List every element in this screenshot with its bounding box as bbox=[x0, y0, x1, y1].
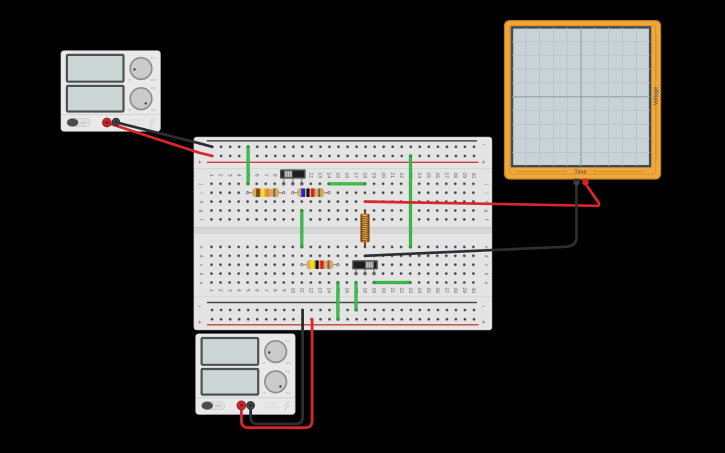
svg-text:1: 1 bbox=[208, 289, 214, 292]
svg-text:OFF: OFF bbox=[215, 404, 221, 408]
svg-text:+: + bbox=[198, 159, 202, 166]
svg-text:0: 0 bbox=[129, 108, 131, 112]
svg-text:27: 27 bbox=[443, 172, 449, 178]
svg-text:8: 8 bbox=[271, 289, 277, 292]
svg-text:17: 17 bbox=[353, 172, 359, 178]
svg-text:20: 20 bbox=[380, 172, 386, 178]
svg-text:29: 29 bbox=[461, 287, 467, 293]
svg-text:i: i bbox=[198, 192, 204, 193]
svg-text:15: 15 bbox=[335, 172, 341, 178]
svg-text:2: 2 bbox=[217, 289, 223, 292]
svg-text:d: d bbox=[483, 255, 489, 258]
svg-text:+: + bbox=[198, 320, 202, 327]
svg-text:a: a bbox=[198, 281, 203, 284]
svg-text:d: d bbox=[198, 255, 204, 258]
svg-text:22: 22 bbox=[398, 287, 404, 293]
svg-text:19: 19 bbox=[371, 172, 377, 178]
svg-text:10: 10 bbox=[289, 287, 295, 293]
svg-text:5: 5 bbox=[244, 289, 250, 292]
svg-text:e: e bbox=[483, 246, 488, 249]
svg-text:11: 11 bbox=[298, 288, 304, 293]
svg-text:+: + bbox=[482, 320, 486, 327]
svg-text:22: 22 bbox=[398, 172, 404, 178]
svg-text:OFF: OFF bbox=[81, 121, 87, 125]
svg-text:28: 28 bbox=[452, 287, 458, 293]
svg-text:16: 16 bbox=[344, 287, 350, 293]
svg-text:24: 24 bbox=[416, 172, 422, 178]
svg-text:10 V: 10 V bbox=[150, 78, 157, 82]
svg-text:e: e bbox=[198, 246, 203, 249]
svg-text:16: 16 bbox=[344, 172, 350, 178]
svg-text:28: 28 bbox=[452, 172, 458, 178]
svg-text:SUPPLY: SUPPLY bbox=[265, 405, 279, 409]
svg-text:20: 20 bbox=[380, 287, 386, 293]
svg-text:j: j bbox=[198, 183, 204, 185]
svg-text:0: 0 bbox=[263, 361, 265, 365]
svg-text:12: 12 bbox=[307, 287, 313, 293]
svg-text:12: 12 bbox=[307, 172, 313, 178]
svg-text:19: 19 bbox=[371, 287, 377, 293]
svg-text:23: 23 bbox=[407, 287, 413, 293]
svg-text:0: 0 bbox=[263, 391, 265, 395]
svg-text:21: 21 bbox=[389, 287, 395, 293]
svg-text:29: 29 bbox=[461, 172, 467, 178]
svg-text:a: a bbox=[483, 281, 488, 284]
svg-text:2: 2 bbox=[217, 174, 223, 177]
svg-text:0: 0 bbox=[129, 78, 131, 82]
svg-text:7: 7 bbox=[262, 289, 268, 292]
svg-text:14: 14 bbox=[326, 287, 332, 293]
svg-text:24: 24 bbox=[416, 287, 422, 293]
svg-text:h: h bbox=[198, 201, 204, 204]
svg-text:b: b bbox=[198, 273, 204, 276]
svg-text:14: 14 bbox=[326, 172, 332, 178]
svg-text:6: 6 bbox=[253, 174, 259, 177]
svg-text:b: b bbox=[483, 273, 489, 276]
svg-text:3: 3 bbox=[226, 174, 232, 177]
svg-text:4: 4 bbox=[235, 289, 241, 292]
svg-text:9: 9 bbox=[280, 289, 286, 292]
svg-text:25: 25 bbox=[425, 172, 431, 178]
svg-text:8: 8 bbox=[271, 174, 277, 177]
svg-text:Voltage: Voltage bbox=[653, 87, 660, 106]
svg-text:Time: Time bbox=[574, 169, 586, 176]
svg-text:+: + bbox=[482, 159, 486, 166]
svg-text:g: g bbox=[198, 209, 203, 212]
svg-text:30: 30 bbox=[470, 287, 476, 293]
svg-text:7: 7 bbox=[262, 174, 268, 177]
svg-text:26: 26 bbox=[434, 172, 440, 178]
svg-text:j: j bbox=[483, 183, 489, 185]
svg-text:i: i bbox=[483, 192, 489, 193]
svg-text:30: 30 bbox=[470, 172, 476, 178]
svg-text:13: 13 bbox=[317, 172, 323, 178]
svg-text:21: 21 bbox=[389, 172, 395, 178]
svg-text:4: 4 bbox=[235, 174, 241, 177]
svg-text:1: 1 bbox=[208, 174, 214, 177]
svg-text:g: g bbox=[483, 209, 488, 212]
svg-text:10 V: 10 V bbox=[285, 361, 292, 365]
svg-text:27: 27 bbox=[443, 287, 449, 293]
svg-text:26: 26 bbox=[434, 287, 440, 293]
svg-text:18: 18 bbox=[362, 172, 368, 178]
svg-text:3: 3 bbox=[226, 289, 232, 292]
svg-text:18: 18 bbox=[362, 287, 368, 293]
svg-text:13: 13 bbox=[317, 287, 323, 293]
svg-text:25: 25 bbox=[425, 287, 431, 293]
svg-text:6: 6 bbox=[253, 289, 259, 292]
